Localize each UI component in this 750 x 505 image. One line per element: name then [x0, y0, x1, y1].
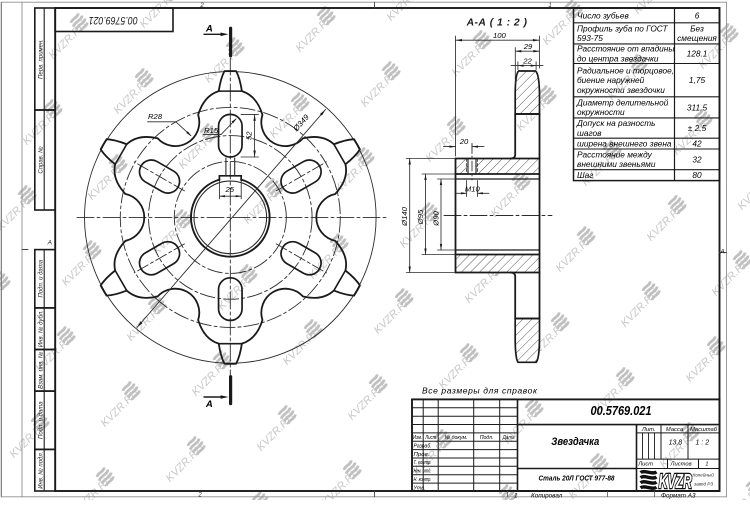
svg-text:100: 100: [493, 31, 507, 40]
svg-text:Лит.: Лит.: [641, 427, 656, 433]
svg-text:Без: Без: [690, 23, 704, 33]
svg-text:А-А ( 1 : 2 ): А-А ( 1 : 2 ): [466, 18, 528, 29]
svg-text:Нач. отд.: Нач. отд.: [414, 469, 432, 475]
svg-text:Ø140: Ø140: [400, 206, 409, 227]
svg-text:22: 22: [522, 57, 532, 66]
svg-text:Ø95: Ø95: [416, 209, 425, 225]
svg-text:до центра звездачки: до центра звездачки: [577, 54, 659, 64]
svg-text:Копировал: Копировал: [531, 492, 563, 499]
svg-text:завод РЗ: завод РЗ: [693, 482, 713, 487]
svg-text:29: 29: [523, 42, 533, 51]
svg-text:Шаг: Шаг: [577, 170, 593, 180]
svg-text:Расстояние от впадины: Расстояние от впадины: [577, 44, 674, 54]
svg-text:Лист: Лист: [637, 461, 653, 467]
svg-text:Инв. № подл.: Инв. № подл.: [37, 452, 44, 489]
svg-text:Н. контр.: Н. контр.: [414, 477, 432, 483]
svg-text:А: А: [205, 399, 213, 410]
svg-text:Взам. инв. №: Взам. инв. №: [37, 351, 44, 389]
svg-text:биение наружней: биение наружней: [577, 75, 645, 85]
svg-text:42: 42: [692, 139, 702, 149]
svg-text:Сталь 20Л ГОСТ 977-88: Сталь 20Л ГОСТ 977-88: [539, 474, 616, 483]
svg-text:Диаметр делительной: Диаметр делительной: [576, 97, 669, 107]
svg-text:Лист: Лист: [424, 435, 436, 441]
svg-text:№ докум.: № докум.: [445, 435, 468, 441]
svg-text:20: 20: [459, 137, 469, 146]
svg-text:1,75: 1,75: [689, 75, 706, 85]
svg-text:А: А: [719, 249, 724, 256]
svg-text:128.1: 128.1: [687, 49, 708, 59]
svg-text:окружности: окружности: [577, 107, 625, 117]
svg-text:2: 2: [199, 3, 204, 9]
svg-text:Перв. примен.: Перв. примен.: [38, 39, 44, 79]
svg-text:Профиль зуба по ГОСТ: Профиль зуба по ГОСТ: [577, 23, 669, 33]
svg-text:Копейный: Копейный: [693, 472, 715, 478]
svg-text:13,8: 13,8: [669, 440, 683, 447]
svg-text:Подп. и дата: Подп. и дата: [38, 259, 44, 297]
svg-text:Инв. № дубл.: Инв. № дубл.: [37, 310, 44, 347]
svg-text:Формат А3: Формат А3: [661, 492, 696, 499]
svg-text:Радиальное и торцовое,: Радиальное и торцовое,: [577, 65, 674, 75]
svg-text:00.5769.021: 00.5769.021: [591, 403, 652, 418]
svg-text:R28: R28: [148, 112, 163, 121]
svg-text:Т. контр.: Т. контр.: [414, 460, 432, 466]
svg-text:R15: R15: [204, 126, 219, 135]
svg-text:А: А: [47, 240, 52, 247]
svg-text:Подп. и дата: Подп. и дата: [38, 401, 44, 439]
svg-text:Изм.: Изм.: [413, 435, 423, 441]
svg-text:311.5: 311.5: [687, 102, 708, 112]
svg-text:смещения: смещения: [677, 33, 717, 43]
svg-text:Допуск на разность: Допуск на разность: [576, 118, 656, 128]
svg-text:Листов: Листов: [670, 461, 692, 467]
svg-text:25: 25: [225, 185, 235, 194]
svg-text:Все размеры для справок: Все размеры для справок: [422, 386, 538, 396]
svg-text:± 2.5: ± 2.5: [688, 123, 707, 133]
svg-text:593-75: 593-75: [577, 33, 603, 43]
svg-text:А: А: [205, 23, 213, 34]
svg-text:Разраб.: Разраб.: [414, 444, 432, 450]
svg-text:Утв.: Утв.: [413, 485, 426, 491]
svg-text:М10: М10: [465, 184, 481, 193]
svg-text:1: 1: [548, 3, 551, 9]
svg-text:Расстояние между: Расстояние между: [577, 149, 653, 159]
svg-text:32: 32: [692, 154, 702, 164]
svg-text:Число зубьев: Число зубьев: [577, 10, 630, 20]
svg-text:6: 6: [695, 10, 700, 20]
svg-text:шагов: шагов: [577, 128, 602, 138]
svg-text:2: 2: [197, 493, 202, 499]
svg-text:1: 1: [514, 492, 518, 499]
svg-text:Масса: Масса: [666, 427, 684, 433]
svg-text:окружности звездочки: окружности звездочки: [577, 85, 665, 95]
svg-text:1: 1: [705, 461, 708, 467]
svg-text:1 : 2: 1 : 2: [695, 440, 709, 447]
svg-text:ширена внешнего звена: ширена внешнего звена: [577, 139, 672, 149]
svg-text:00.5769.021: 00.5769.021: [89, 14, 138, 26]
svg-text:KVZR: KVZR: [659, 471, 692, 493]
svg-text:Подп.: Подп.: [480, 435, 494, 441]
svg-text:Масштаб: Масштаб: [690, 427, 718, 433]
svg-text:Ø90: Ø90: [432, 211, 441, 227]
svg-text:Дата: Дата: [502, 435, 515, 441]
svg-text:Звездачка: Звездачка: [551, 436, 599, 448]
svg-text:80: 80: [692, 170, 702, 180]
svg-text:Пров.: Пров.: [414, 452, 430, 458]
svg-text:внешними звеньями: внешними звеньями: [577, 159, 656, 169]
svg-text:Справ. №: Справ. №: [37, 146, 44, 174]
svg-text:52: 52: [245, 131, 254, 140]
